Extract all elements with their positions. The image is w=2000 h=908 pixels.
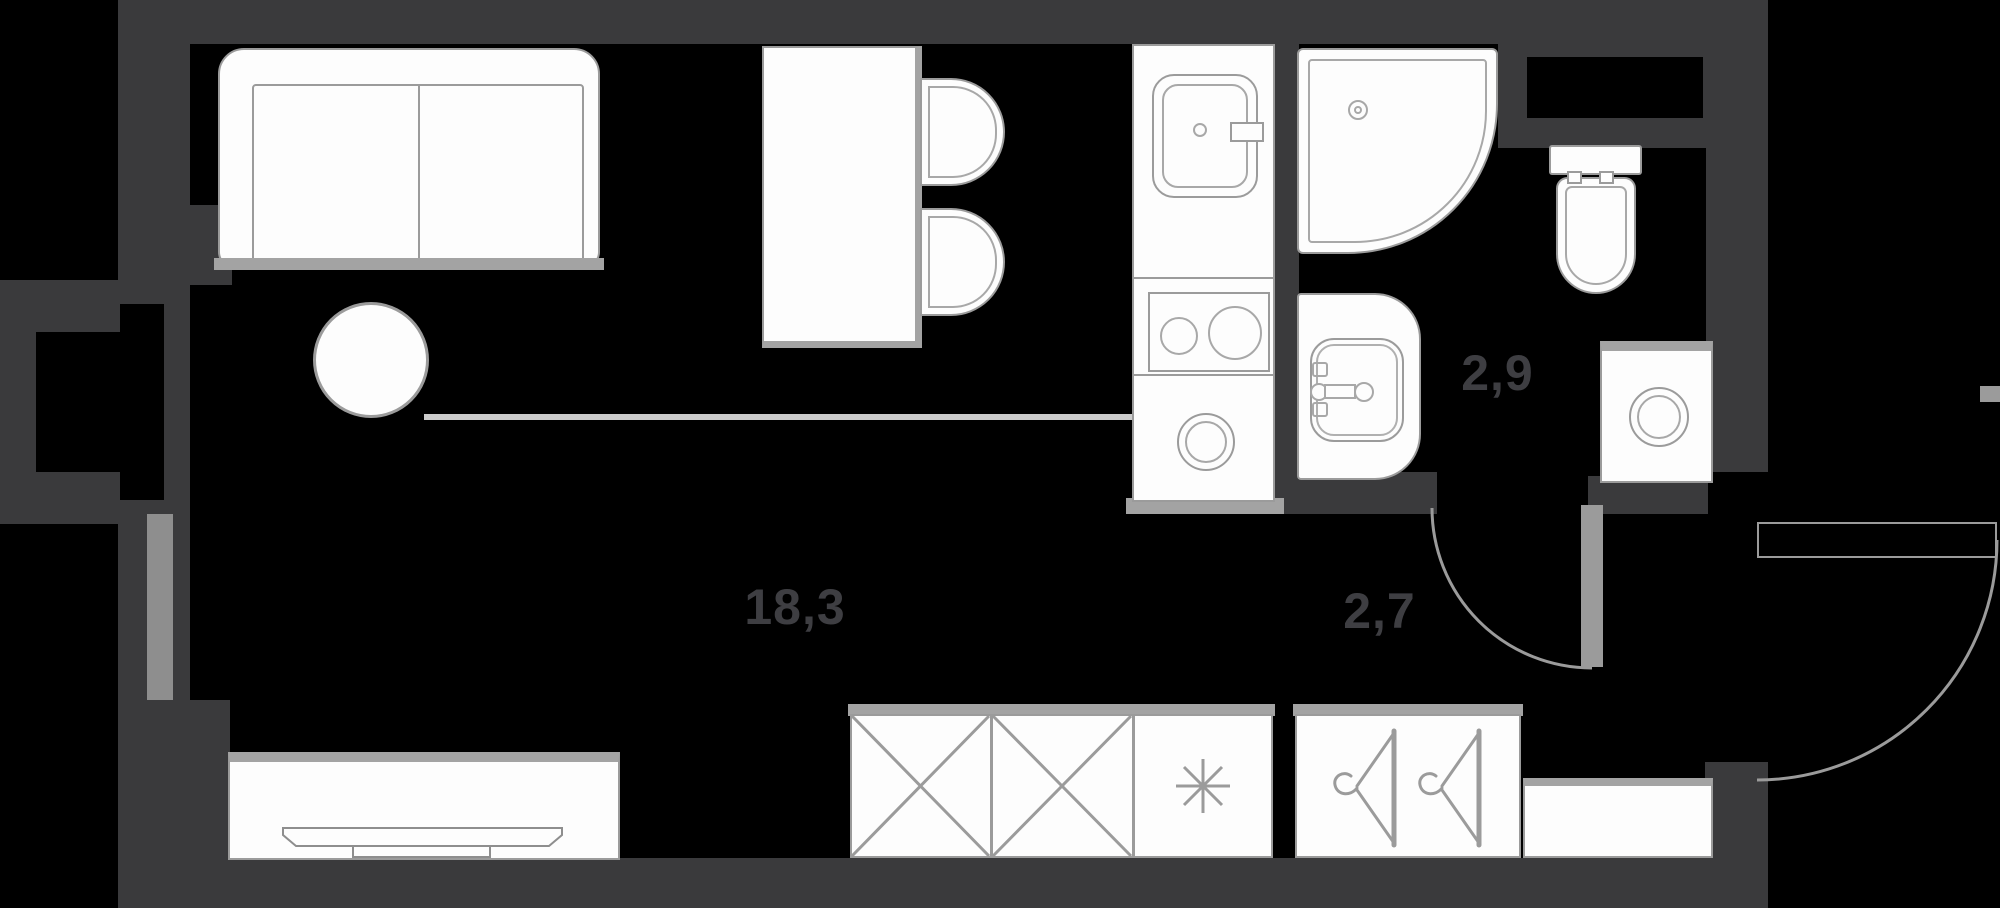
shower-inner-line (1308, 59, 1487, 243)
room-area-label-bathroom: 2,9 (1425, 346, 1570, 401)
neighbor-wall-fragment (1980, 386, 2000, 402)
shower-drain-dot (1354, 106, 1362, 114)
sofa-seats (252, 84, 584, 262)
floor-plan: 18,3 2,9 2,7 (0, 0, 2000, 908)
sofa-seat-divider (418, 86, 420, 260)
bar-stool-icon (920, 208, 1005, 316)
faucet-handle (1312, 402, 1328, 417)
radiator-strip (147, 514, 173, 700)
hanger-closet-icon (1295, 714, 1521, 858)
toilet-tank (1549, 145, 1642, 175)
wall-kitchen-bath-divider (1275, 44, 1299, 514)
faucet-spout (1324, 384, 1356, 399)
corner-shower-icon (1297, 48, 1498, 254)
toilet-hinge (1567, 171, 1582, 184)
sink-faucet-icon (1230, 122, 1264, 142)
room-area-label-living: 18,3 (695, 580, 895, 635)
washer-drum-inner (1637, 395, 1681, 439)
bathroom-door-leaf (1581, 505, 1603, 667)
toilet-hinge (1599, 171, 1614, 184)
window-frame-icon (14, 302, 120, 502)
kitchen-counter-icon (1132, 44, 1275, 502)
tv-stand-icon (228, 752, 620, 860)
sofa-front-edge (214, 258, 604, 270)
kitchen-round-appliance-inner (1185, 421, 1227, 463)
burner-small (1160, 317, 1198, 355)
wardrobe-section (991, 714, 1134, 858)
entrance-door-leaf (1757, 522, 1997, 558)
wall-left-pier (118, 205, 232, 285)
bar-table-icon (762, 46, 922, 348)
bar-stool-inner-line (928, 216, 997, 308)
wardrobe-section (850, 714, 992, 858)
window-plane (164, 300, 190, 504)
faucet-handle (1312, 362, 1328, 377)
round-table-icon (313, 302, 429, 418)
shelf-cabinet-icon (1523, 778, 1713, 858)
wall-right-stub (1705, 762, 1768, 908)
bathroom-door-swing-arc (1432, 508, 1592, 668)
toilet-bowl-inner (1565, 186, 1627, 285)
kitchen-zone-line (424, 414, 1132, 420)
faucet-end (1354, 382, 1374, 402)
shower-drain (1348, 100, 1368, 120)
sink-drain (1193, 123, 1207, 137)
burner-large (1208, 306, 1262, 360)
wall-left-upper (118, 0, 190, 208)
bar-stool-icon (920, 78, 1005, 186)
bar-stool-inner-line (928, 86, 997, 178)
entrance-door-swing-arc (1757, 540, 1997, 780)
ventilation-niche (1527, 57, 1703, 118)
wall-top (118, 0, 1768, 44)
refrigerator-box (1133, 714, 1273, 858)
wall-bottom (118, 858, 1768, 908)
room-area-label-hallway: 2,7 (1307, 584, 1452, 639)
kitchen-divider-line (1134, 277, 1273, 279)
toilet-icon (1556, 177, 1636, 294)
washing-machine-icon (1600, 341, 1713, 483)
kitchen-divider-line (1134, 374, 1273, 376)
vanity-sink-icon (1297, 293, 1421, 480)
window-bay-top (0, 280, 190, 304)
